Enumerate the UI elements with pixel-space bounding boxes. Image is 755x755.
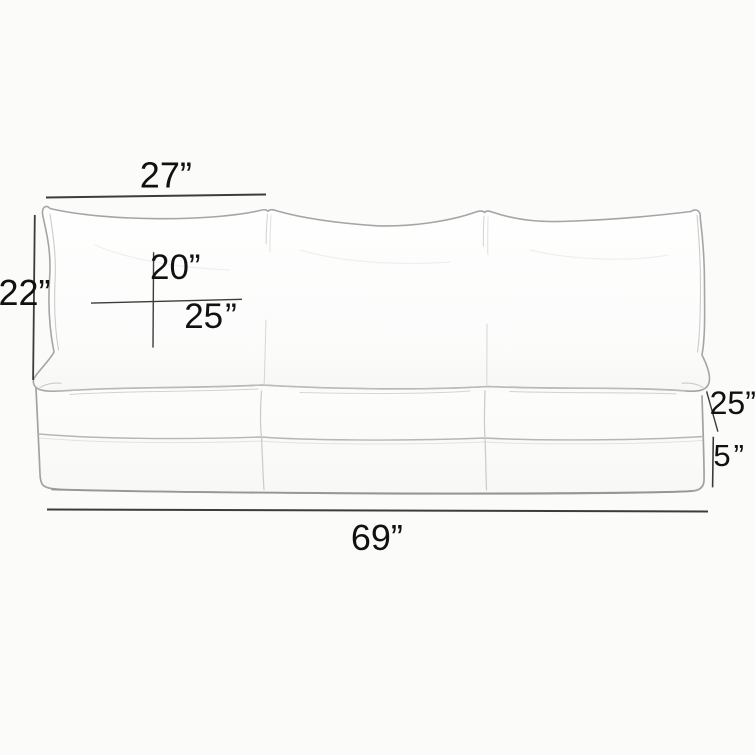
svg-text:25”: 25” — [710, 385, 755, 421]
svg-text:69”: 69” — [351, 517, 403, 558]
svg-text:5”: 5” — [713, 438, 744, 473]
svg-text:20”: 20” — [150, 248, 201, 287]
svg-text:22”: 22” — [0, 272, 51, 313]
svg-text:25”: 25” — [184, 297, 237, 336]
svg-text:27”: 27” — [140, 155, 192, 196]
